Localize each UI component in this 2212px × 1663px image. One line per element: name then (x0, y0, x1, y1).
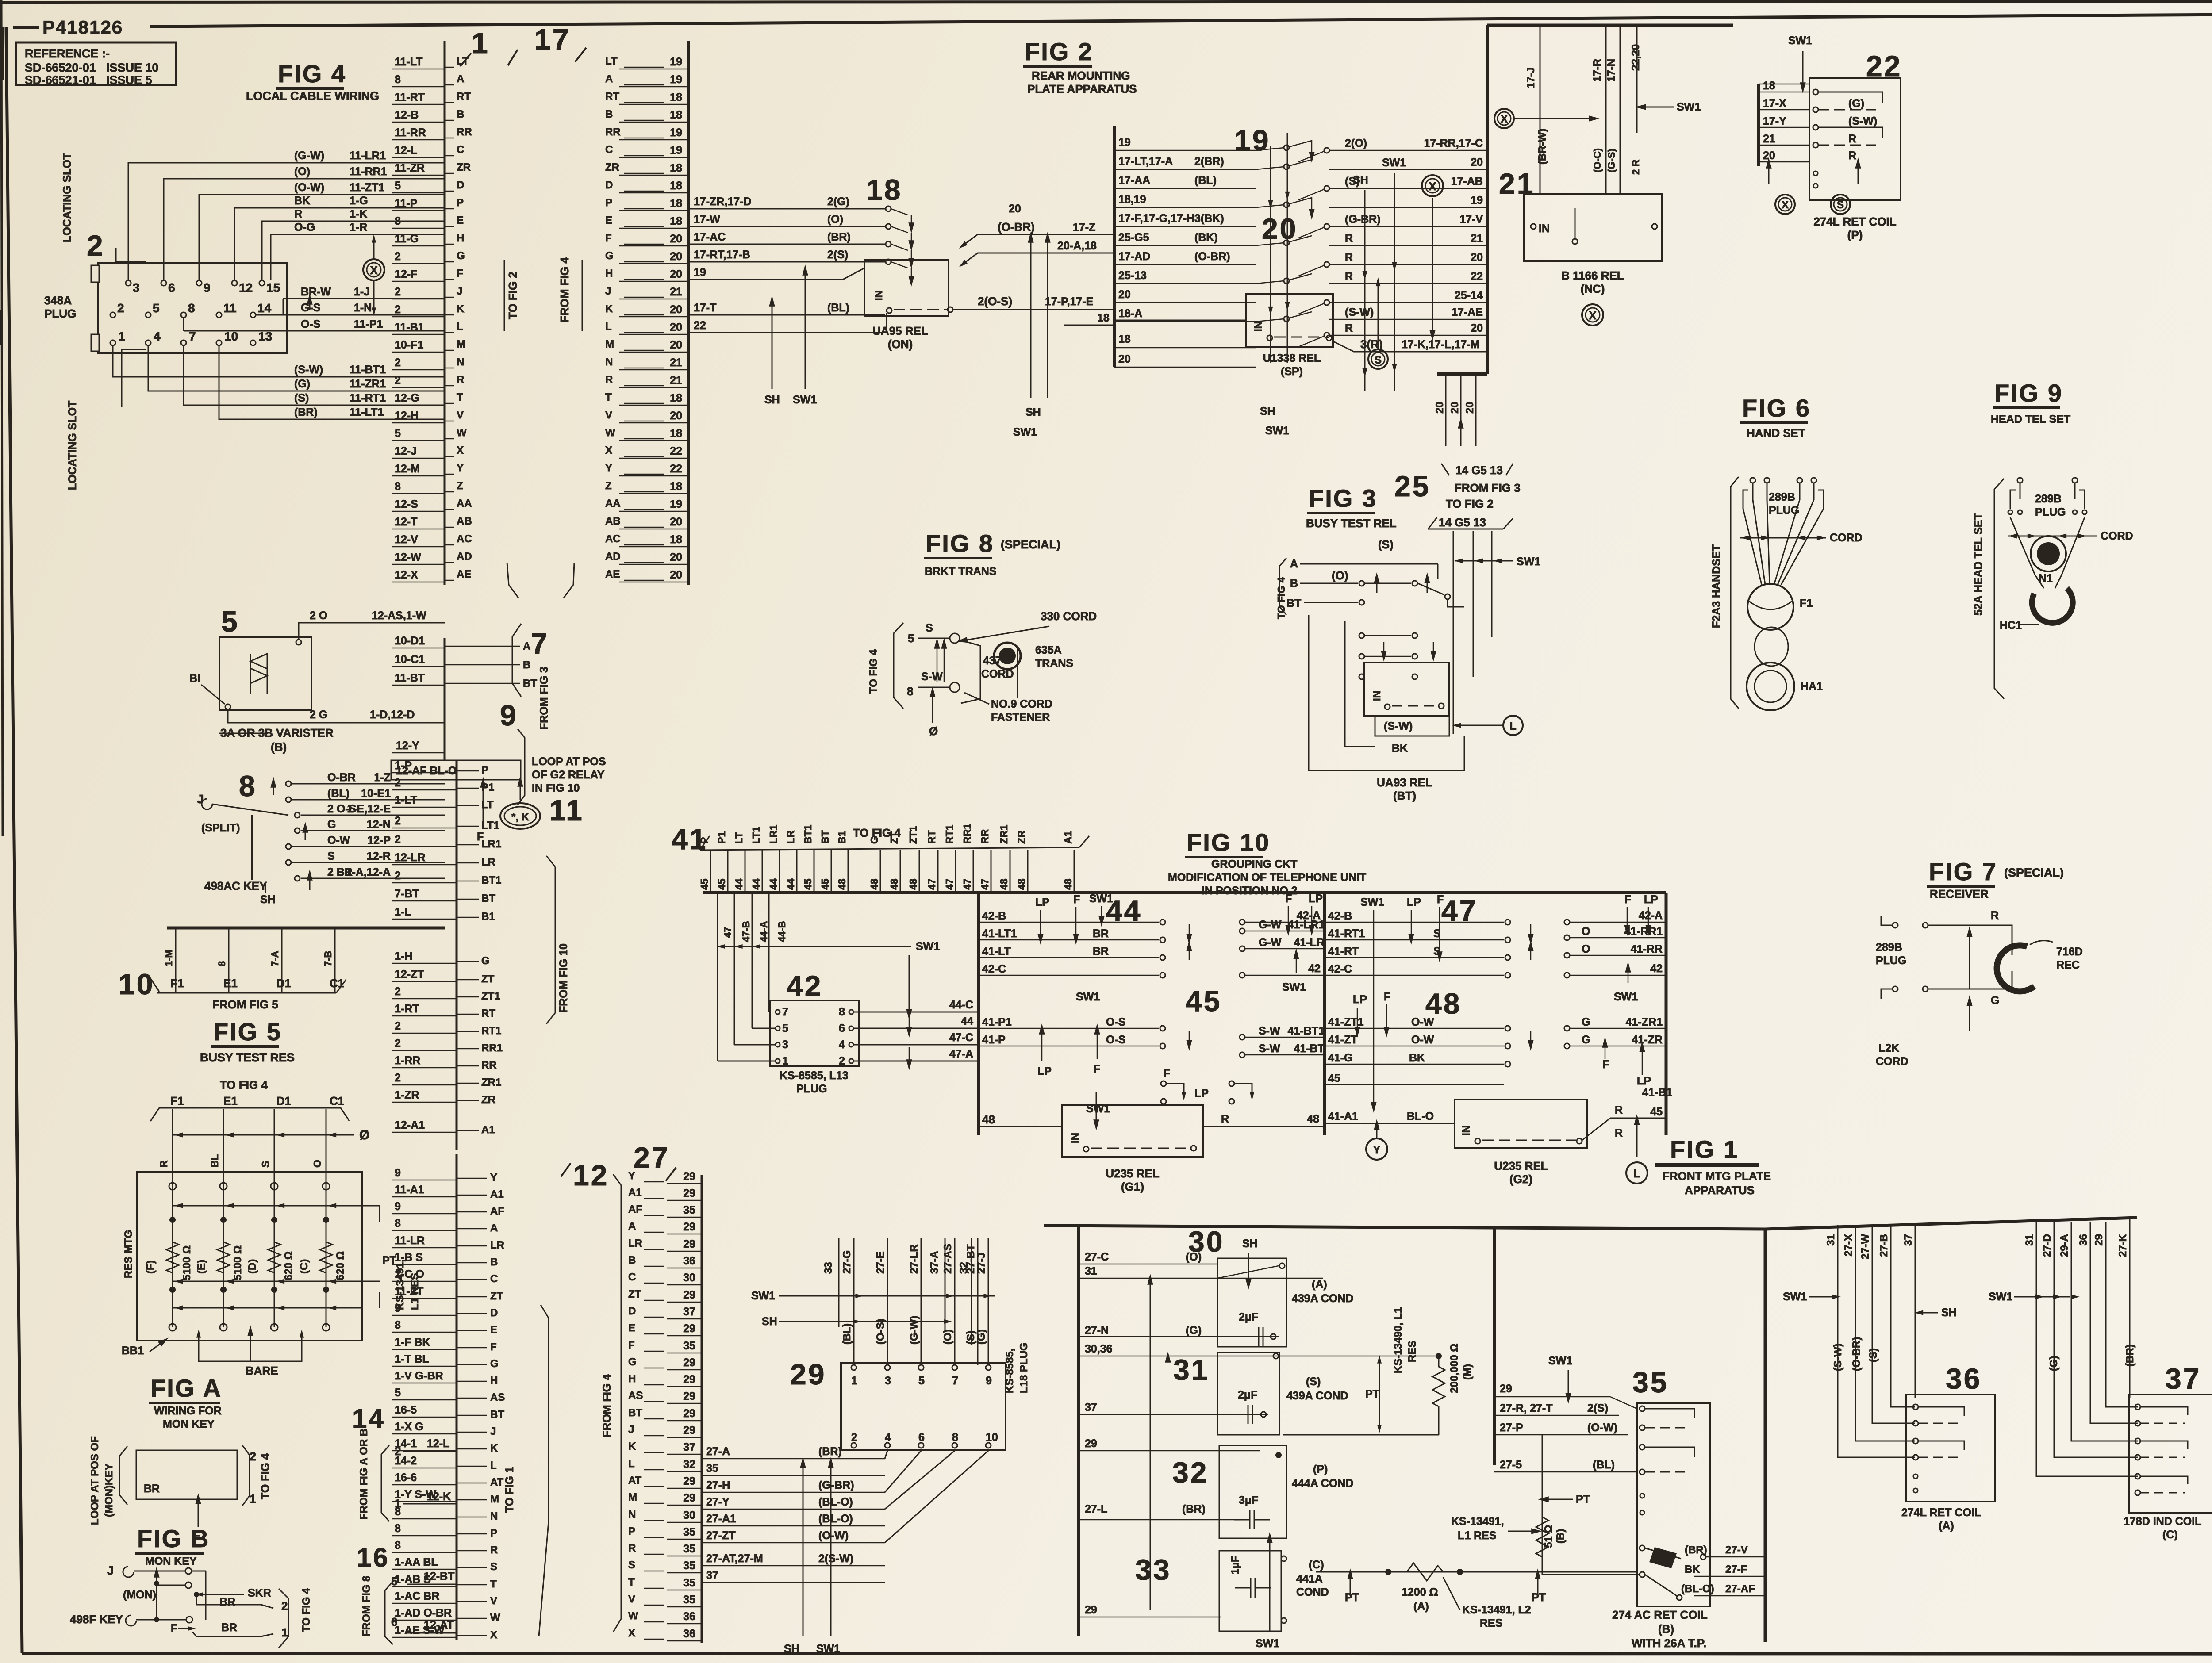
svg-text:35: 35 (683, 1577, 695, 1589)
svg-text:12-N: 12-N (367, 818, 391, 831)
svg-text:(BT): (BT) (1393, 789, 1416, 802)
svg-text:27: 27 (634, 1141, 669, 1174)
svg-text:O-W: O-W (1411, 1034, 1434, 1046)
svg-text:11-ZR1: 11-ZR1 (349, 378, 386, 390)
svg-text:X: X (1501, 113, 1508, 125)
svg-text:17-AB: 17-AB (1451, 175, 1483, 188)
svg-text:20: 20 (670, 569, 682, 581)
svg-text:17-AC: 17-AC (694, 231, 726, 243)
svg-text:27-X: 27-X (1843, 1234, 1855, 1257)
svg-text:SD-66520-01: SD-66520-01 (25, 61, 96, 74)
svg-text:18: 18 (670, 392, 682, 404)
svg-text:2: 2 (117, 301, 124, 315)
svg-text:(O-C): (O-C) (1592, 148, 1603, 172)
svg-text:LP: LP (1644, 893, 1658, 906)
svg-text:(ON): (ON) (888, 337, 913, 351)
svg-text:27-G: 27-G (841, 1250, 853, 1274)
svg-text:44: 44 (961, 1015, 973, 1027)
svg-text:20: 20 (670, 339, 682, 351)
svg-text:3μF: 3μF (1239, 1494, 1258, 1506)
svg-text:3: 3 (782, 1038, 788, 1051)
svg-text:RT: RT (457, 91, 471, 103)
svg-text:ZT: ZT (490, 1290, 503, 1302)
svg-text:12: 12 (573, 1159, 609, 1192)
svg-text:27-AF: 27-AF (1725, 1583, 1755, 1595)
svg-text:29: 29 (683, 1221, 695, 1233)
svg-text:(O): (O) (942, 1329, 954, 1345)
svg-text:RT: RT (926, 830, 937, 844)
svg-text:1: 1 (281, 1626, 288, 1639)
svg-text:8: 8 (395, 1319, 401, 1331)
svg-text:(C): (C) (298, 1259, 310, 1274)
svg-text:FROM FIG 8: FROM FIG 8 (361, 1576, 373, 1636)
svg-text:J: J (107, 1564, 114, 1577)
svg-text:8: 8 (395, 73, 401, 86)
svg-text:G-W: G-W (1259, 919, 1282, 931)
svg-text:29: 29 (1500, 1383, 1512, 1395)
svg-text:14 G5 13: 14 G5 13 (1439, 516, 1486, 529)
svg-text:1-Y S-W: 1-Y S-W (395, 1488, 436, 1501)
svg-text:TO FIG 4: TO FIG 4 (868, 649, 879, 694)
svg-text:(BL-O): (BL-O) (818, 1513, 853, 1525)
svg-text:V: V (457, 409, 464, 421)
svg-text:10-C1: 10-C1 (395, 653, 425, 666)
svg-text:1-AB S: 1-AB S (395, 1573, 431, 1586)
svg-text:12-H: 12-H (395, 410, 419, 422)
svg-text:45: 45 (1328, 1072, 1340, 1084)
svg-text:LP: LP (1037, 1065, 1052, 1077)
svg-text:12-V: 12-V (395, 533, 418, 546)
svg-text:1-RT: 1-RT (395, 1003, 419, 1015)
svg-text:(M): (M) (1462, 1364, 1474, 1380)
svg-text:IN: IN (1069, 1133, 1081, 1143)
svg-text:(BR): (BR) (1182, 1503, 1206, 1515)
svg-text:FIG 10: FIG 10 (1187, 828, 1270, 856)
svg-text:O-G: O-G (294, 221, 315, 234)
svg-text:BRKT TRANS: BRKT TRANS (925, 565, 997, 578)
svg-text:(A): (A) (1939, 1520, 1954, 1532)
svg-text:O: O (1582, 925, 1590, 938)
svg-text:PLUG: PLUG (2035, 506, 2066, 518)
svg-text:(MON)KEY: (MON)KEY (103, 1464, 115, 1517)
svg-text:1-R: 1-R (349, 221, 367, 234)
svg-text:K: K (457, 303, 465, 315)
svg-text:R: R (1848, 149, 1856, 162)
svg-text:8: 8 (952, 1431, 958, 1444)
svg-text:LOCAL CABLE WIRING: LOCAL CABLE WIRING (246, 89, 379, 103)
svg-text:20: 20 (1262, 212, 1298, 245)
svg-text:FIG 8: FIG 8 (926, 529, 994, 557)
svg-text:12-P: 12-P (367, 834, 391, 847)
svg-text:11-LT1: 11-LT1 (349, 406, 384, 418)
svg-text:27-B: 27-B (1878, 1234, 1890, 1257)
svg-text:348A: 348A (44, 294, 72, 307)
svg-text:1-X G: 1-X G (395, 1421, 423, 1433)
svg-text:H: H (457, 232, 464, 244)
svg-text:3: 3 (133, 281, 140, 295)
svg-text:L: L (1633, 1168, 1640, 1180)
svg-text:S-W: S-W (921, 671, 943, 683)
svg-text:18-A: 18-A (1118, 307, 1142, 320)
svg-text:B: B (457, 108, 464, 120)
svg-text:29: 29 (683, 1492, 695, 1504)
svg-text:42-A: 42-A (1639, 909, 1663, 922)
svg-text:Ø: Ø (929, 724, 938, 738)
svg-text:14-1: 14-1 (395, 1437, 417, 1450)
svg-text:17-Z: 17-Z (1073, 221, 1095, 234)
svg-text:(E): (E) (196, 1260, 207, 1274)
svg-text:(SPECIAL): (SPECIAL) (1001, 538, 1060, 551)
svg-text:17-AE: 17-AE (1452, 306, 1483, 318)
svg-text:17-V: 17-V (1459, 213, 1483, 226)
svg-text:45: 45 (802, 878, 814, 890)
svg-text:41-ZR: 41-ZR (1632, 1034, 1663, 1046)
svg-text:SW1: SW1 (1265, 425, 1289, 437)
svg-text:17-RR,17-C: 17-RR,17-C (1424, 137, 1483, 149)
svg-text:27-J: 27-J (975, 1253, 987, 1274)
svg-text:BUSY TEST RES: BUSY TEST RES (200, 1051, 295, 1064)
svg-text:B: B (490, 1256, 498, 1268)
svg-text:48: 48 (982, 1113, 995, 1126)
svg-text:AT: AT (490, 1476, 504, 1488)
svg-text:T: T (605, 391, 612, 403)
svg-text:A1: A1 (490, 1188, 504, 1200)
svg-text:LT: LT (457, 55, 469, 67)
svg-text:12-T: 12-T (395, 516, 417, 528)
svg-text:178D IND COIL: 178D IND COIL (2124, 1515, 2201, 1528)
svg-text:Y: Y (605, 462, 612, 474)
svg-text:7: 7 (952, 1375, 958, 1387)
svg-text:SW1: SW1 (793, 394, 817, 406)
svg-text:11-BT: 11-BT (395, 672, 425, 684)
svg-text:3: 3 (885, 1375, 891, 1387)
svg-text:GROUPING CKT: GROUPING CKT (1211, 858, 1297, 870)
svg-text:PT: PT (1576, 1493, 1590, 1506)
svg-text:(S-W): (S-W) (1345, 306, 1374, 318)
svg-text:44-C: 44-C (949, 999, 973, 1011)
svg-text:2: 2 (395, 777, 401, 789)
svg-text:(BL): (BL) (841, 1323, 853, 1345)
svg-text:18: 18 (1763, 80, 1775, 92)
svg-text:44: 44 (768, 878, 779, 890)
svg-text:498AC KEY: 498AC KEY (204, 879, 267, 893)
svg-text:11: 11 (223, 301, 237, 315)
svg-text:(G-BR): (G-BR) (1345, 213, 1381, 226)
svg-text:Y: Y (490, 1172, 497, 1184)
svg-text:200,000 Ω: 200,000 Ω (1448, 1343, 1460, 1393)
svg-text:KS-13490, L1: KS-13490, L1 (1392, 1307, 1404, 1373)
svg-text:RT: RT (481, 1008, 495, 1019)
svg-text:REAR MOUNTING: REAR MOUNTING (1032, 69, 1130, 82)
svg-text:O: O (1582, 943, 1590, 955)
svg-text:2: 2 (395, 833, 401, 846)
svg-text:P418126: P418126 (42, 17, 123, 38)
svg-text:U1338 REL: U1338 REL (1263, 352, 1321, 364)
svg-text:TO FIG 4: TO FIG 4 (259, 1453, 272, 1499)
svg-text:J: J (490, 1425, 496, 1437)
svg-text:8: 8 (395, 1522, 401, 1535)
svg-text:6: 6 (839, 1022, 845, 1035)
svg-text:UA93 REL: UA93 REL (1377, 776, 1432, 789)
svg-text:17-AA: 17-AA (1118, 174, 1150, 187)
svg-text:18: 18 (670, 480, 682, 493)
svg-text:(S): (S) (1867, 1348, 1879, 1362)
svg-text:Z: Z (457, 480, 463, 492)
svg-text:48: 48 (1425, 987, 1461, 1020)
svg-text:2: 2 (851, 1431, 857, 1444)
svg-text:CORD: CORD (1876, 1055, 1909, 1068)
svg-text:37: 37 (683, 1306, 695, 1318)
svg-text:(P): (P) (1313, 1463, 1328, 1475)
svg-text:29: 29 (2093, 1234, 2105, 1246)
svg-text:7: 7 (189, 330, 196, 343)
svg-text:X: X (1589, 310, 1597, 322)
svg-text:SH: SH (1025, 406, 1041, 418)
svg-text:IN: IN (1460, 1125, 1472, 1136)
svg-text:17-RT,17-B: 17-RT,17-B (694, 249, 750, 261)
svg-text:TO FIG 2: TO FIG 2 (1446, 497, 1494, 510)
svg-text:H: H (490, 1375, 498, 1387)
svg-text:BR: BR (144, 1483, 160, 1495)
svg-text:5: 5 (918, 1375, 925, 1387)
svg-text:(S-W): (S-W) (1848, 115, 1877, 127)
svg-text:A: A (1290, 558, 1298, 570)
svg-text:D1: D1 (276, 1094, 291, 1107)
svg-text:MON KEY: MON KEY (145, 1555, 197, 1567)
svg-text:TO FIG 4: TO FIG 4 (300, 1588, 312, 1632)
svg-text:31: 31 (1085, 1265, 1097, 1277)
svg-text:B: B (605, 108, 613, 120)
svg-text:R: R (457, 374, 464, 386)
svg-text:LT: LT (605, 55, 618, 67)
svg-text:V: V (628, 1593, 635, 1605)
svg-text:D1: D1 (276, 977, 291, 990)
svg-text:45: 45 (699, 878, 710, 890)
svg-text:SW1: SW1 (1548, 1355, 1572, 1367)
svg-text:IN: IN (1252, 321, 1264, 332)
svg-text:4: 4 (885, 1431, 891, 1444)
svg-text:1-L: 1-L (395, 906, 411, 918)
svg-text:41-RT1: 41-RT1 (1328, 927, 1365, 940)
svg-text:SH: SH (1353, 174, 1368, 186)
svg-text:20: 20 (670, 303, 682, 316)
svg-text:K: K (490, 1442, 498, 1454)
svg-text:(O-W): (O-W) (1587, 1422, 1617, 1434)
svg-text:27-V: 27-V (1725, 1544, 1748, 1556)
svg-text:BARE: BARE (246, 1364, 278, 1377)
svg-text:(O): (O) (1332, 569, 1348, 582)
svg-text:IN: IN (873, 290, 885, 301)
svg-text:27-A: 27-A (706, 1445, 730, 1458)
svg-text:1: 1 (250, 1492, 256, 1506)
svg-text:22: 22 (1471, 270, 1483, 283)
svg-text:BR: BR (1093, 927, 1109, 940)
svg-text:8: 8 (239, 770, 257, 802)
svg-text:S-W: S-W (1259, 1025, 1280, 1037)
svg-text:19: 19 (1118, 136, 1131, 149)
svg-text:CORD: CORD (1830, 532, 1863, 544)
svg-text:G: G (457, 250, 465, 262)
svg-text:F1: F1 (170, 977, 184, 990)
svg-text:29: 29 (1085, 1437, 1097, 1450)
svg-text:PLUG: PLUG (1876, 954, 1906, 967)
svg-text:FROM FIG A OR B: FROM FIG A OR B (358, 1429, 370, 1520)
svg-text:2μF: 2μF (1238, 1389, 1257, 1401)
svg-text:17: 17 (534, 23, 570, 56)
svg-text:T: T (628, 1576, 635, 1588)
svg-text:F: F (605, 232, 612, 244)
svg-text:SW1: SW1 (1089, 893, 1113, 905)
svg-text:32: 32 (958, 1262, 970, 1274)
svg-text:12-A1: 12-A1 (395, 1119, 425, 1131)
svg-text:2: 2 (395, 374, 401, 387)
svg-text:MODIFICATION OF TELEPHONE UNIT: MODIFICATION OF TELEPHONE UNIT (1168, 871, 1366, 884)
svg-text:42-A: 42-A (1297, 909, 1321, 922)
svg-text:A: A (457, 73, 464, 85)
svg-text:LP: LP (1309, 893, 1323, 905)
svg-text:5: 5 (395, 1302, 401, 1314)
svg-text:AD: AD (457, 551, 472, 563)
svg-text:BK: BK (1685, 1563, 1700, 1575)
svg-text:20: 20 (1471, 156, 1483, 169)
svg-text:B: B (1290, 577, 1298, 590)
svg-text:48: 48 (1307, 1113, 1319, 1125)
svg-text:RECEIVER: RECEIVER (1930, 887, 1989, 900)
svg-text:B 1166 REL: B 1166 REL (1561, 269, 1624, 282)
svg-text:47: 47 (979, 878, 991, 890)
svg-text:COND: COND (1296, 1586, 1329, 1598)
svg-text:14 G5 13: 14 G5 13 (1455, 464, 1503, 477)
svg-text:BT: BT (481, 893, 495, 904)
svg-text:(S): (S) (294, 392, 309, 404)
svg-text:47-A: 47-A (949, 1048, 973, 1060)
svg-text:E: E (628, 1322, 635, 1334)
svg-text:20: 20 (670, 410, 682, 422)
svg-text:LR1: LR1 (481, 838, 501, 850)
svg-text:1-K: 1-K (349, 208, 367, 220)
svg-text:21: 21 (1763, 133, 1775, 145)
svg-text:18: 18 (670, 91, 682, 103)
svg-text:C: C (457, 144, 464, 156)
svg-text:RT1: RT1 (481, 1025, 501, 1037)
svg-text:2: 2 (395, 250, 401, 263)
svg-text:F1: F1 (1800, 597, 1813, 609)
svg-text:E1: E1 (223, 977, 238, 990)
svg-text:1200 Ω: 1200 Ω (1402, 1586, 1438, 1598)
svg-text:ZR: ZR (1016, 830, 1027, 844)
svg-text:11-LT: 11-LT (395, 56, 422, 68)
svg-text:35: 35 (683, 1594, 695, 1606)
svg-text:Y: Y (1373, 1144, 1381, 1156)
svg-text:FIG 9: FIG 9 (1994, 379, 2063, 407)
svg-text:(BR): (BR) (818, 1445, 842, 1458)
svg-text:20: 20 (1471, 251, 1483, 264)
svg-text:29: 29 (1085, 1604, 1097, 1616)
svg-text:8: 8 (188, 301, 195, 315)
svg-text:M: M (457, 338, 465, 350)
svg-text:SH: SH (1242, 1238, 1258, 1250)
svg-text:2: 2 (395, 356, 401, 369)
svg-text:(O-BR): (O-BR) (998, 220, 1035, 234)
svg-text:20: 20 (670, 551, 682, 563)
svg-text:PLUG: PLUG (796, 1083, 827, 1095)
svg-text:F: F (628, 1339, 635, 1351)
svg-text:BK: BK (1409, 1052, 1425, 1064)
svg-text:SW1: SW1 (1989, 1291, 2012, 1303)
svg-text:1-AA BL: 1-AA BL (395, 1556, 438, 1568)
svg-text:LOOP AT POS OF: LOOP AT POS OF (89, 1436, 101, 1525)
svg-text:A1: A1 (1062, 831, 1074, 844)
svg-text:29: 29 (683, 1373, 695, 1386)
svg-text:IN: IN (1539, 222, 1550, 235)
svg-text:FROM FIG 10: FROM FIG 10 (557, 943, 570, 1013)
svg-text:P1: P1 (481, 782, 494, 793)
svg-text:S: S (628, 1559, 635, 1571)
svg-text:27-Y: 27-Y (706, 1496, 730, 1508)
svg-text:ZR1: ZR1 (998, 824, 1010, 844)
svg-text:X: X (628, 1627, 635, 1639)
svg-text:29: 29 (683, 1475, 695, 1487)
svg-text:20: 20 (1118, 288, 1131, 301)
svg-text:41-P: 41-P (982, 1034, 1006, 1046)
svg-text:21: 21 (1471, 232, 1483, 245)
svg-text:C1: C1 (330, 977, 344, 990)
svg-text:P: P (481, 764, 488, 776)
svg-text:FIG 5: FIG 5 (213, 1018, 282, 1046)
svg-text:TO FIG 1: TO FIG 1 (503, 1467, 516, 1513)
svg-text:WIRING FOR: WIRING FOR (154, 1405, 222, 1417)
svg-text:F: F (1073, 893, 1080, 906)
svg-text:1-V G-BR: 1-V G-BR (395, 1370, 443, 1382)
svg-text:620 Ω: 620 Ω (334, 1251, 346, 1280)
svg-text:LP: LP (1035, 896, 1049, 908)
svg-text:5: 5 (782, 1022, 788, 1035)
svg-text:U235 REL: U235 REL (1494, 1159, 1548, 1173)
svg-text:W: W (457, 427, 467, 439)
svg-text:FIG 4: FIG 4 (278, 60, 346, 88)
svg-text:(SPECIAL): (SPECIAL) (2004, 866, 2064, 879)
svg-text:AA: AA (605, 498, 621, 510)
svg-text:10: 10 (224, 330, 238, 343)
svg-text:1-N: 1-N (354, 302, 372, 314)
svg-text:1-M: 1-M (163, 950, 174, 966)
svg-text:27-W: 27-W (1859, 1234, 1871, 1260)
svg-text:(G-W): (G-W) (908, 1316, 920, 1345)
svg-text:M: M (490, 1493, 499, 1505)
svg-text:9: 9 (395, 1167, 401, 1179)
svg-text:289B: 289B (1769, 491, 1795, 503)
svg-text:C1: C1 (330, 1094, 344, 1107)
svg-text:(O-S): (O-S) (875, 1318, 887, 1345)
svg-text:27-A1: 27-A1 (706, 1513, 736, 1525)
svg-text:P: P (605, 197, 612, 209)
svg-text:BB1: BB1 (122, 1345, 144, 1357)
svg-text:22: 22 (670, 445, 682, 457)
svg-text:9: 9 (395, 1200, 401, 1213)
svg-text:1: 1 (851, 1375, 857, 1387)
svg-text:17-X: 17-X (1763, 97, 1786, 110)
svg-text:PLUG: PLUG (44, 307, 76, 320)
svg-text:G: G (1582, 1016, 1590, 1028)
svg-text:36: 36 (683, 1628, 695, 1640)
svg-text:L: L (605, 321, 612, 333)
svg-text:27-N: 27-N (1085, 1324, 1109, 1337)
svg-text:2 O: 2 O (310, 609, 327, 622)
svg-text:(BL): (BL) (1194, 174, 1217, 187)
svg-text:C: C (490, 1273, 498, 1285)
svg-text:L: L (1509, 720, 1516, 732)
svg-text:BT: BT (628, 1407, 642, 1419)
